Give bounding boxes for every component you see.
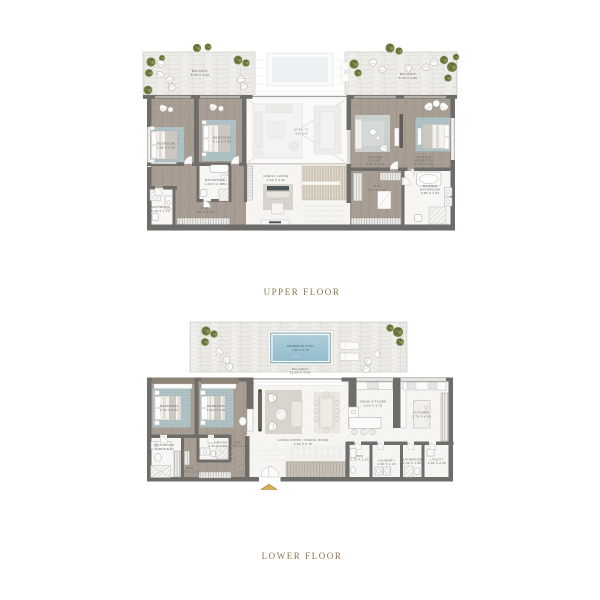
svg-text:3.60 X 1.90: 3.60 X 1.90 [195, 210, 214, 214]
svg-text:3.30 X 4.30: 3.30 X 4.30 [160, 408, 179, 412]
svg-text:7.90 X 3.75: 7.90 X 3.75 [292, 348, 310, 352]
svg-text:8.20 X 3.00: 8.20 X 3.00 [399, 76, 418, 80]
svg-text:3.85 X 4.25: 3.85 X 4.25 [157, 146, 176, 150]
svg-text:2.90 X 2.20: 2.90 X 2.20 [377, 462, 396, 466]
svg-text:4.40 X 3.60: 4.40 X 3.60 [267, 178, 286, 182]
svg-text:1.70 X 2.20: 1.70 X 2.20 [350, 458, 369, 462]
svg-text:3.85 X 3.00: 3.85 X 3.00 [421, 191, 440, 195]
svg-text:2.20 X 3.10: 2.20 X 3.10 [155, 447, 174, 451]
svg-text:4.60 X 8.75: 4.60 X 8.75 [294, 442, 313, 446]
svg-text:BELOW: BELOW [295, 132, 307, 136]
svg-text:15.90 X 4.00: 15.90 X 4.00 [290, 371, 311, 375]
svg-text:3.60 X 4.30: 3.60 X 4.30 [207, 408, 226, 412]
svg-text:3.20 X 3.75: 3.20 X 3.75 [364, 403, 383, 407]
svg-text:2.00 X 1.95: 2.00 X 1.95 [403, 461, 422, 465]
svg-text:1.70 X 3.05: 1.70 X 3.05 [229, 444, 248, 448]
svg-text:4.15 X 4.05: 4.15 X 4.05 [213, 140, 232, 144]
svg-text:LOWER FLOOR: LOWER FLOOR [262, 551, 343, 561]
svg-text:2.40 X 2.135: 2.40 X 2.135 [205, 182, 226, 186]
svg-text:2.00 X 2.20: 2.00 X 2.20 [428, 461, 447, 465]
svg-text:8.25 X 3.00: 8.25 X 3.00 [191, 73, 210, 77]
svg-text:4.63 X 5.40: 4.63 X 5.40 [415, 162, 434, 166]
svg-text:3.60 X 3.16: 3.60 X 3.16 [368, 188, 387, 192]
svg-text:2.40 X 1.70: 2.40 X 1.70 [151, 209, 170, 213]
svg-text:1.95 X 2.20: 1.95 X 2.20 [181, 469, 200, 473]
svg-text:2.75 X 4.50: 2.75 X 4.50 [412, 414, 431, 418]
svg-text:2.30 X 2.20: 2.30 X 2.20 [208, 444, 227, 448]
svg-text:3.96 X 5.40: 3.96 X 5.40 [366, 162, 385, 166]
svg-text:UPPER FLOOR: UPPER FLOOR [264, 287, 341, 297]
